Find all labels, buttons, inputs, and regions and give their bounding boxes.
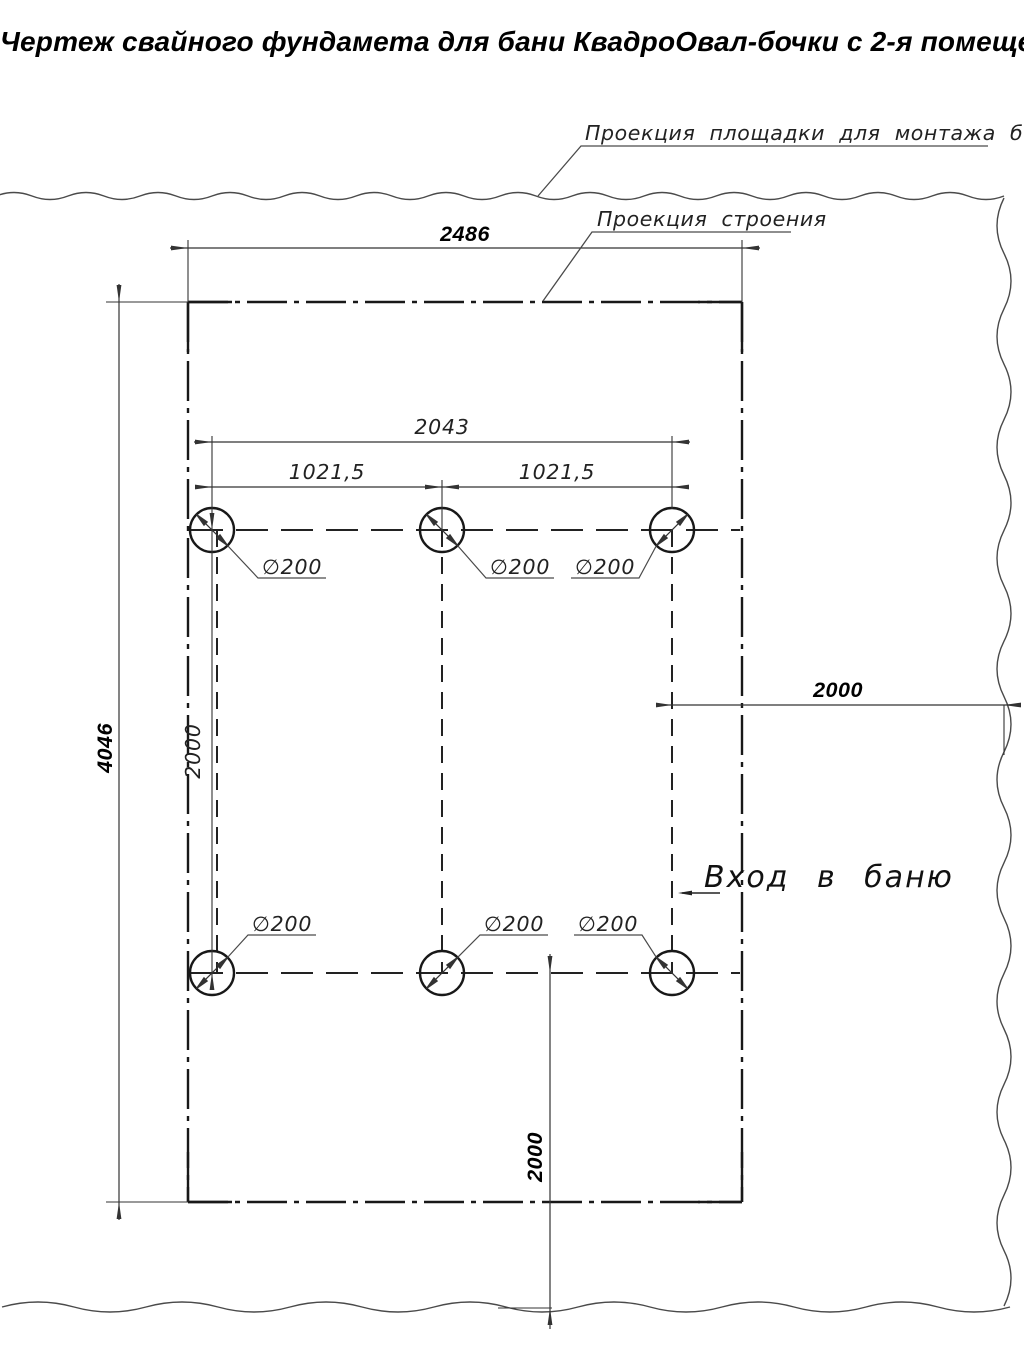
callout-building-projection: Проекция строения <box>543 207 827 301</box>
arrowhead <box>656 957 667 968</box>
leader-line <box>574 935 656 957</box>
leader-line <box>228 935 316 957</box>
dim-entrance-clearance: 2000 <box>656 678 1021 755</box>
arrowhead <box>442 485 459 490</box>
pile-diameter-label: ∅200 <box>575 555 635 579</box>
arrowhead <box>426 978 437 989</box>
arrowhead <box>447 535 458 546</box>
entrance-annotation: Вход в баню <box>678 860 954 895</box>
arrowhead <box>672 485 689 490</box>
pile-diameter-label: ∅200 <box>490 555 550 579</box>
arrowhead <box>195 440 212 445</box>
pile-diameter-label: ∅200 <box>578 912 638 936</box>
dim-value-bottom-clearance: 2000 <box>523 1132 547 1183</box>
leader-line <box>458 935 548 957</box>
pile-diameter-label: ∅200 <box>252 912 312 936</box>
entrance-arrowhead <box>678 891 692 896</box>
arrowhead <box>677 978 688 989</box>
dim-bottom-clearance: 2000 <box>498 954 552 1329</box>
arrowhead <box>656 535 667 546</box>
arrowhead <box>656 703 672 708</box>
dim-value-pile-span-total: 2043 <box>414 415 469 439</box>
callout-site-projection: Проекция площадки для монтажа бани <box>538 121 1024 196</box>
arrowhead <box>117 285 122 302</box>
arrowhead <box>196 978 207 989</box>
dim-value-entrance-clearance: 2000 <box>812 678 863 702</box>
dim-pile-span-total: 2043 <box>194 415 690 444</box>
arrowhead <box>217 957 228 968</box>
dim-value-pile-span-left: 1021,5 <box>289 460 366 484</box>
arrowhead <box>171 246 188 251</box>
arrowhead <box>672 440 689 445</box>
arrowhead <box>677 514 688 525</box>
pile-axes <box>191 530 740 973</box>
pile-diameter-label: ∅200 <box>484 912 544 936</box>
foundation-drawing: ∅200 ∅200 ∅200 ∅200 ∅200 ∅200 2486 4046 … <box>0 0 1024 1365</box>
arrowhead <box>548 956 553 973</box>
dim-value-pile-span-right: 1021,5 <box>519 460 596 484</box>
callout-building-projection-text: Проекция строения <box>597 207 827 231</box>
arrowhead <box>195 485 212 490</box>
arrowhead <box>426 514 437 525</box>
dim-building-length: 4046 <box>93 284 121 1220</box>
callout-site-projection-text: Проекция площадки для монтажа бани <box>585 121 1024 145</box>
dim-value-pile-row-spacing: 2000 <box>181 723 205 778</box>
leader-line <box>538 146 988 196</box>
site-edge-bottom-wavy <box>2 1302 1010 1312</box>
arrowhead <box>548 1308 553 1325</box>
entrance-text: Вход в баню <box>704 860 954 895</box>
dim-pile-row-spacing: 2000 <box>181 513 214 990</box>
dim-value-building-length: 4046 <box>93 723 117 774</box>
arrowhead <box>447 957 458 968</box>
arrowhead <box>217 535 228 546</box>
arrowhead <box>425 485 442 490</box>
dim-value-building-width: 2486 <box>439 222 490 246</box>
site-boundary <box>0 193 1011 1313</box>
arrowhead <box>117 1202 122 1219</box>
arrowhead <box>210 513 215 530</box>
pile-diameter-label: ∅200 <box>262 555 322 579</box>
site-edge-top-wavy <box>0 193 1004 200</box>
arrowhead <box>210 973 215 990</box>
arrowhead <box>742 246 759 251</box>
arrowhead <box>196 514 207 525</box>
extension-lines <box>106 240 742 1202</box>
leader-line <box>543 232 791 301</box>
